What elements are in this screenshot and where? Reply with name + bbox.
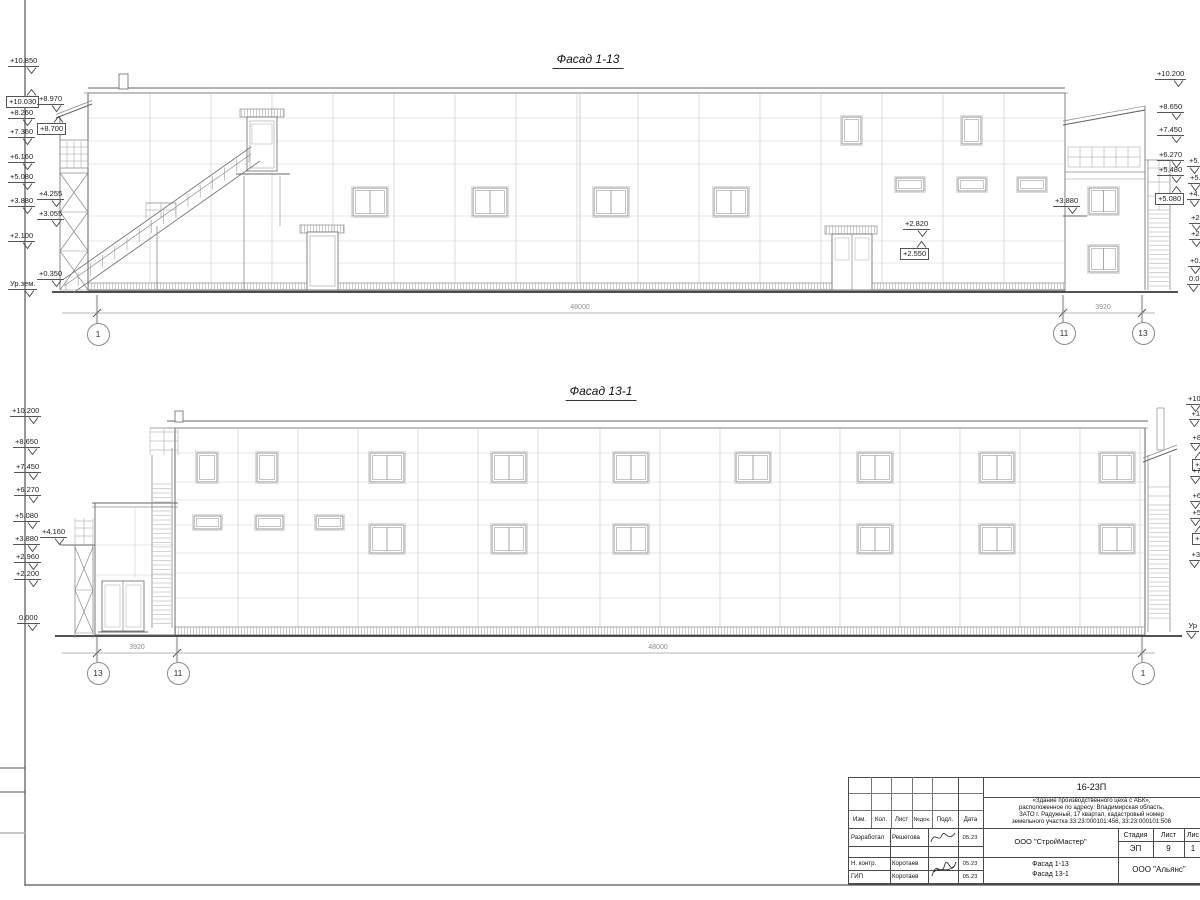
elevation-value: +3.055: [37, 210, 64, 220]
sheet-label: Лист: [1153, 830, 1184, 841]
elevation-mark: +4.160: [40, 528, 67, 545]
axis-number: 11: [174, 668, 183, 678]
elevation-value: +2.550: [900, 248, 929, 260]
row-name: Коротаев: [892, 871, 927, 883]
elevation-value: +6: [1190, 492, 1200, 502]
elevation-value: +8: [1190, 434, 1200, 444]
row-name: Решетова: [892, 831, 927, 845]
elevation-value: Ур: [1186, 622, 1199, 632]
elevation-value: +5.: [1187, 157, 1200, 167]
facade-top-title: Фасад 1-13: [553, 52, 624, 69]
elevation-mark: +2.960: [14, 553, 41, 570]
axis-bubble: 1: [1132, 662, 1155, 685]
elevation-mark: +7.450: [1157, 126, 1184, 143]
elevation-mark: +6.270: [14, 486, 41, 503]
elevation-value: +2.: [1189, 230, 1200, 240]
axis-number: 11: [1060, 328, 1069, 338]
facade-linework: [0, 0, 1200, 900]
doc-number: 16-23П: [983, 779, 1200, 795]
elevation-mark: +2.100: [8, 232, 35, 249]
elevation-mark: +8.700: [37, 116, 66, 135]
elevation-mark: +5: [1190, 509, 1200, 526]
left-annex-bottom: [60, 428, 178, 638]
dimension-label: 3920: [129, 644, 145, 651]
elevation-value: +4.: [1187, 190, 1200, 200]
designer-org: ООО "СтройМастер": [983, 832, 1118, 852]
elevation-mark: 0.000: [17, 614, 40, 631]
elevation-mark: +2.820: [903, 220, 930, 237]
elevation-value: Ур.зем.: [8, 280, 37, 290]
elevation-mark: +6: [1190, 492, 1200, 509]
elevation-value: +7.450: [1157, 126, 1184, 136]
elevation-mark: Ур: [1186, 622, 1199, 639]
axis-bubble: 11: [1053, 322, 1076, 345]
elevation-value: +3.880: [1053, 197, 1080, 207]
elevation-mark: +5.: [1187, 157, 1200, 174]
signature-scribble: [929, 829, 957, 845]
col-list: Лист: [891, 814, 912, 827]
elevation-value: +10.030: [6, 96, 39, 108]
elevation-mark: +10.030: [6, 89, 39, 108]
elevation-mark: +2.200: [14, 570, 41, 587]
sheet-title-line: Фасад 13-1: [983, 869, 1118, 880]
project-desc-line: земельного участка 33:23:000101:456, 33:…: [985, 819, 1198, 826]
axis-number: 13: [93, 668, 102, 678]
elevation-value: +0.: [1188, 257, 1200, 267]
col-podl: Подл.: [932, 814, 958, 827]
elevation-value: +5: [1192, 533, 1200, 545]
elevation-value: +1: [1189, 410, 1200, 420]
elevation-mark: +0.350: [37, 270, 64, 287]
elevation-mark: +5.480: [1157, 166, 1184, 183]
elevation-value: 0.0: [1187, 275, 1200, 285]
elevation-value: +2.100: [8, 232, 35, 242]
dimension-label: 3920: [1095, 304, 1111, 311]
axis-bubble: 1: [87, 323, 110, 346]
elevation-mark: +3.880: [13, 535, 40, 552]
elevation-value: +3.880: [8, 197, 35, 207]
elevation-mark: +8.970: [37, 95, 64, 112]
row-date: 05.23: [959, 831, 981, 845]
col-kol: Кол.: [871, 814, 891, 827]
elevation-mark: +1: [1189, 410, 1200, 427]
elevation-value: +5.080: [13, 512, 40, 522]
elevation-value: +10.850: [8, 57, 39, 67]
elevation-value: +10: [1186, 395, 1200, 405]
dimension-label: 48000: [570, 304, 589, 311]
elevation-value: +5.080: [8, 173, 35, 183]
elevation-value: +2.: [1189, 214, 1200, 224]
elevation-mark: +5.080: [8, 173, 35, 190]
elevation-value: +2.960: [14, 553, 41, 563]
elevation-value: +3: [1189, 551, 1200, 561]
right-tower-bottom: [1143, 408, 1177, 632]
elevation-mark: +2.: [1189, 230, 1200, 247]
row-role: Н. контр.: [851, 858, 889, 870]
elevation-mark: +8.650: [13, 438, 40, 455]
elevation-value: +8.700: [37, 123, 66, 135]
elevation-value: +2.200: [14, 570, 41, 580]
row-role: Разработал: [851, 831, 889, 845]
elevation-value: +7.360: [8, 128, 35, 138]
elevation-value: +7.450: [14, 463, 41, 473]
elevation-value: +6.160: [8, 153, 35, 163]
elevation-mark: +10.850: [8, 57, 39, 74]
elevation-value: +2.820: [903, 220, 930, 230]
sheets-label: Лис: [1187, 830, 1200, 841]
elevation-mark: 0.0: [1187, 275, 1200, 292]
signature-scribble: [929, 856, 957, 882]
elevation-value: +4.160: [40, 528, 67, 538]
elevation-mark: +4.255: [37, 190, 64, 207]
elevation-value: +6.270: [1157, 151, 1184, 161]
elevation-mark: +3: [1189, 551, 1200, 568]
dimension-label: 48000: [648, 644, 667, 651]
axis-number: 13: [1138, 328, 1147, 338]
elevation-mark: +7: [1190, 467, 1200, 484]
axis-number: 1: [1141, 668, 1146, 678]
elevation-value: +5.080: [1155, 193, 1184, 205]
elevation-mark: +5: [1192, 526, 1200, 545]
elevation-mark: Ур.зем.: [8, 280, 37, 297]
contractor-org: ООО "Альянс": [1118, 861, 1200, 879]
sheets-count: 1: [1184, 843, 1200, 856]
elevation-mark: +0.: [1188, 257, 1200, 274]
elevation-mark: +8.260: [8, 109, 35, 126]
elevation-value: +6.270: [14, 486, 41, 496]
row-role: ГИП: [851, 871, 889, 883]
elevation-mark: +8: [1190, 434, 1200, 451]
elevation-value: +10.200: [10, 407, 41, 417]
elevation-mark: +8.650: [1157, 103, 1184, 120]
elevation-value: +3.880: [13, 535, 40, 545]
axis-number: 1: [96, 329, 101, 339]
axis-bubble: 13: [87, 662, 110, 685]
elevation-mark: +10.200: [10, 407, 41, 424]
dimension-bottom: [62, 637, 1155, 662]
elevation-value: +4.255: [37, 190, 64, 200]
drawing-sheet: +10.850+10.030+8.970+8.260+8.700+7.360+6…: [0, 0, 1200, 900]
elevation-value: +5: [1190, 509, 1200, 519]
elevation-mark: +5.080: [13, 512, 40, 529]
elevation-value: +8.650: [13, 438, 40, 448]
axis-bubble: 13: [1132, 322, 1155, 345]
dimension-top: [62, 295, 1155, 330]
elevation-value: +8.650: [1157, 103, 1184, 113]
row-name: Коротаев: [892, 858, 927, 870]
elevation-mark: +7.360: [8, 128, 35, 145]
row-date: 05.23: [959, 871, 981, 883]
elevation-value: +5.: [1188, 174, 1200, 184]
stage-value: ЭП: [1118, 843, 1153, 856]
col-izm: Изм.: [848, 814, 871, 827]
elevation-mark: +10.200: [1155, 70, 1186, 87]
col-data: Дата: [958, 814, 983, 827]
elevation-mark: +6.160: [8, 153, 35, 170]
axis-bubble: 11: [167, 662, 190, 685]
elevation-value: 0.000: [17, 614, 40, 624]
col-ndok: №док.: [912, 814, 932, 827]
elevation-mark: +4.: [1187, 190, 1200, 207]
elevation-value: +7: [1190, 467, 1200, 477]
elevation-value: +0.350: [37, 270, 64, 280]
elevation-mark: +3.880: [1053, 197, 1080, 214]
elevation-mark: +7.450: [14, 463, 41, 480]
row-date: 05.23: [959, 858, 981, 870]
elevation-mark: +2.550: [900, 241, 929, 260]
facade-bottom-title: Фасад 13-1: [566, 384, 637, 401]
elevation-value: +5.480: [1157, 166, 1184, 176]
elevation-mark: +5.080: [1155, 186, 1184, 205]
elevation-mark: +3.880: [8, 197, 35, 214]
stage-label: Стадия: [1118, 830, 1153, 841]
elevation-value: +8.260: [8, 109, 35, 119]
facade-top-wall: [52, 74, 1178, 292]
elevation-value: +8.970: [37, 95, 64, 105]
sheet-number: 9: [1153, 843, 1184, 856]
elevation-value: +10.200: [1155, 70, 1186, 80]
elevation-mark: +3.055: [37, 210, 64, 227]
